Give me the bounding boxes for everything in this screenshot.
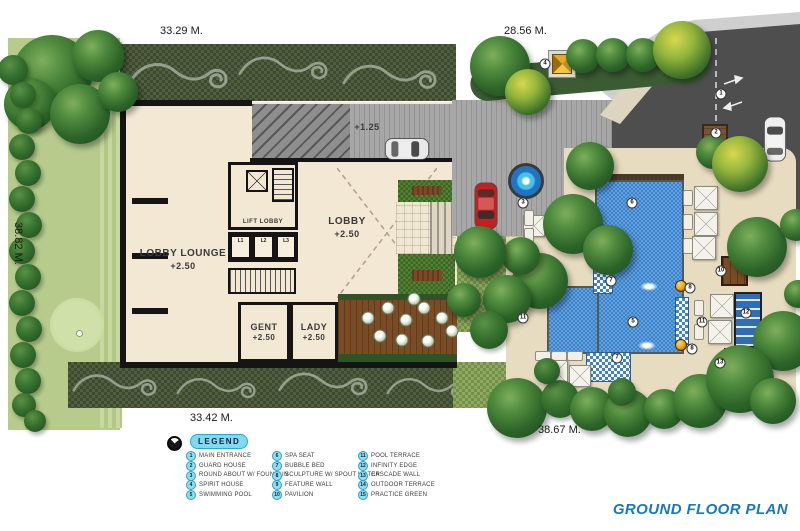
legend-item: 5SWIMMING POOL <box>186 490 272 500</box>
legend-item-number: 8 <box>272 471 282 481</box>
legend-item-label: OUTDOOR TERRACE <box>371 482 435 488</box>
plan-marker-8: 8 <box>685 283 696 294</box>
legend-item-number: 4 <box>186 480 196 490</box>
legend-item-label: SWIMMING POOL <box>199 492 252 498</box>
legend-item-label: SPA SEAT <box>285 453 315 459</box>
legend-item-number: 11 <box>358 451 368 461</box>
legend-item-label: PAVILION <box>285 492 313 498</box>
plan-marker-13: 13 <box>715 358 726 369</box>
legend-item-label: FEATURE WALL <box>285 482 333 488</box>
plan-marker-6: 6 <box>627 198 638 209</box>
legend-item-number: 9 <box>272 480 282 490</box>
legend-item-label: GUARD HOUSE <box>199 463 246 469</box>
dimension-top: 33.29 M. <box>160 25 203 37</box>
legend-item: 8SCULPTURE W/ SPOUT WATER <box>272 471 358 481</box>
legend-item-label: BUBBLE BED <box>285 463 325 469</box>
legend-item-number: 14 <box>358 480 368 490</box>
legend-item-number: 15 <box>358 490 368 500</box>
legend: 1MAIN ENTRANCE 2GUARD HOUSE 3ROUND ABOUT… <box>186 451 466 500</box>
legend-item: 2GUARD HOUSE <box>186 461 272 471</box>
legend-item: 12INFINITY EDGE <box>358 461 466 471</box>
plan-marker-7: 7 <box>612 353 623 364</box>
dimension-bottom: 33.42 M. <box>190 412 233 424</box>
plan-marker-1: 1 <box>716 89 727 100</box>
plan-marker-10: 10 <box>716 266 727 277</box>
legend-item-label: PRACTICE GREEN <box>371 492 427 498</box>
legend-item: 13CASCADE WALL <box>358 471 466 481</box>
legend-item-number: 12 <box>358 461 368 471</box>
legend-item-label: POOL TERRACE <box>371 453 420 459</box>
legend-item: 7BUBBLE BED <box>272 461 358 471</box>
plan-marker-11: 11 <box>697 317 708 328</box>
plan-marker-8: 8 <box>687 344 698 355</box>
legend-item-number: 7 <box>272 461 282 471</box>
legend-item-number: 6 <box>272 451 282 461</box>
dimension-left: 38.82 M. <box>12 222 24 265</box>
compass-icon <box>167 436 182 451</box>
legend-item: 4SPIRIT HOUSE <box>186 480 272 490</box>
legend-item: 9FEATURE WALL <box>272 480 358 490</box>
legend-item-label: SPIRIT HOUSE <box>199 482 244 488</box>
legend-item-label: CASCADE WALL <box>371 472 420 478</box>
legend-item-number: 13 <box>358 471 368 481</box>
legend-item-number: 3 <box>186 471 196 481</box>
legend-item: 14OUTDOOR TERRACE <box>358 480 466 490</box>
legend-item-label: MAIN ENTRANCE <box>199 453 251 459</box>
legend-item-number: 2 <box>186 461 196 471</box>
plan-marker-7: 7 <box>606 276 617 287</box>
legend-item-number: 10 <box>272 490 282 500</box>
plan-marker-11: 11 <box>518 313 529 324</box>
plan-marker-12: 12 <box>741 308 752 319</box>
legend-item-label: INFINITY EDGE <box>371 463 417 469</box>
page-title: GROUND FLOOR PLAN <box>613 501 788 518</box>
ground-floor-plan: +1.25 LIFT LOBBY L1 L2 L3 LOBBY LOUNGE +… <box>0 0 800 531</box>
plan-marker-3: 3 <box>518 198 529 209</box>
legend-item: 11POOL TERRACE <box>358 451 466 461</box>
dimension-top-right: 28.56 M. <box>504 25 547 37</box>
legend-item-number: 1 <box>186 451 196 461</box>
legend-item: 3ROUND ABOUT W/ FOUNTAIN <box>186 471 272 481</box>
legend-title: LEGEND <box>190 434 248 449</box>
legend-item: 6SPA SEAT <box>272 451 358 461</box>
legend-item: 15PRACTICE GREEN <box>358 490 466 500</box>
legend-item: 1MAIN ENTRANCE <box>186 451 272 461</box>
dimension-bottom-right: 38.67 M. <box>538 424 581 436</box>
plan-marker-4: 4 <box>540 59 551 70</box>
plan-marker-5: 5 <box>628 317 639 328</box>
legend-item-number: 5 <box>186 490 196 500</box>
legend-item: 10PAVILION <box>272 490 358 500</box>
plan-marker-2: 2 <box>711 128 722 139</box>
